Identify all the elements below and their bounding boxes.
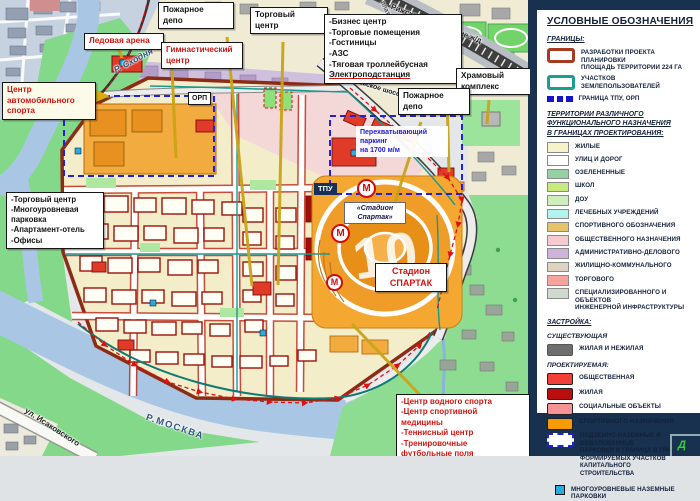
legend-item-label: МНОГОУРОВНЕВЫЕ НАЗЕМНЫЕ ПАРКОВКИ [571,485,695,501]
legend-item: ЖИЛИЩНО-КОММУНАЛЬНОГО [547,262,695,273]
legend-item-label: АДМИНИСТРАТИВНО-ДЕЛОВОГО [575,248,680,256]
callout-fire-depot-2: Пожарное депо [398,88,470,115]
territory-swatch [547,222,569,233]
legend-item: ГРАНИЦА ТПУ, ОРП [547,95,695,103]
legend-item: ШКОЛ [547,182,695,193]
legend-panel: УСЛОВНЫЕ ОБОЗНАЧЕНИЯ ГРАНИЦЫ: РАЗРАБОТКИ… [528,0,700,456]
territory-swatch [547,142,569,153]
legend-item-label: ШКОЛ [575,182,594,190]
legend-item: ЖИЛЫЕ [547,142,695,153]
territory-swatch [547,195,569,206]
legend-item-label: ОЗЕЛЕНЕННЫЕ [575,169,625,177]
callout-auto-sport-center: Центр автомобильного спорта [2,82,96,120]
territory-swatch [547,288,569,299]
label-stadium-spartak: Стадион СПАРТАК [375,263,447,292]
border-swatch-landusers [547,75,575,90]
border-swatch-tpu-orp [547,95,573,103]
legend-item-label: ЛЕЧЕБНЫХ УЧРЕЖДЕНИЙ [575,209,659,217]
legend-item-label: СПОРТИВНОГО ОБОЗНАЧЕНИЯ [575,222,675,230]
blue-square [547,96,554,103]
planned-swatch [547,418,573,430]
callout-south-sports: -Центр водного спорта -Центр спортивной … [396,394,530,456]
callout-fire-depot-1: Пожарное депо [158,2,234,29]
metro-icon: М [357,179,376,198]
legend-item: РАЗРАБОТКИ ПРОЕКТА ПЛАНИРОВКИ ПЛОЩАДЬ ТЕ… [547,48,695,72]
planned-swatch [547,388,573,400]
legend-item: СПОРТИВНОГО ОБОЗНАЧЕНИЯ [547,222,695,233]
legend-item: ЛЕЧЕБНЫХ УЧРЕЖДЕНИЙ [547,209,695,220]
legend-planned-header: ПРОЕКТИРУЕМАЯ: [547,362,695,369]
map-canvas: 10 [0,0,530,456]
callout-ice-arena: Ледовая арена [84,33,164,50]
legend-item: СПОРТИВНОГО НАЗНАЧЕНИЯ [547,418,695,430]
legend-item-label: УЛИЦ И ДОРОГ [575,155,623,163]
blue-square [566,96,573,103]
business-block-substation: Электроподстанция [329,70,410,79]
legend-item-label: ЖИЛАЯ [579,388,603,396]
legend-item-label: РАЗРАБОТКИ ПРОЕКТА ПЛАНИРОВКИ ПЛОЩАДЬ ТЕ… [581,48,695,72]
label-orp: ОРП [188,92,211,105]
legend-item-label: СПЕЦИАЛИЗИРОВАННОГО И ОБЪЕКТОВ ИНЖЕНЕРНО… [575,288,695,312]
callout-intercept-parking: Перехватывающий паркинг на 1700 м/м [356,126,448,157]
label-spartak-station: «Стадион Спартак» [344,202,406,224]
territory-swatch [547,235,569,246]
legend-item: ОБЩЕСТВЕННАЯ [547,373,695,385]
legend-item-label: ОБЩЕСТВЕННАЯ [579,373,634,381]
callout-left-services: -Торговый центр -Многоуровневая парковка… [6,192,104,249]
planned-swatch [547,403,573,415]
legend-item-label: СПОРТИВНОГО НАЗНАЧЕНИЯ [579,418,674,426]
legend-item: ОЗЕЛЕНЕННЫЕ [547,169,695,180]
legend-item-label: ТОРГОВОГО [575,275,614,283]
legend-item: ЖИЛАЯ И НЕЖИЛАЯ [547,344,695,356]
legend-item: СОЦИАЛЬНЫЕ ОБЪЕКТЫ [547,403,695,415]
territory-swatch [547,248,569,259]
business-block-lines: -Бизнес центр -Торговые помещения -Гости… [329,17,428,69]
legend-item-label: ЖИЛЫЕ [575,142,600,150]
legend-item-label: СОЦИАЛЬНЫЕ ОБЪЕКТЫ [579,403,661,411]
territory-swatch [547,262,569,273]
legend-item-label: УЧАСТКОВ ЗЕМЛЕПОЛЬЗОВАТЕЛЕЙ [581,75,695,91]
legend-item: ЖИЛАЯ [547,388,695,400]
multilevel-parking-swatch [555,485,565,495]
planned-swatch [547,373,573,385]
metro-icon: М [331,224,350,243]
legend-item: ДОУ [547,195,695,206]
callout-gym-center: Гимнастический центр [161,42,243,69]
legend-item: УЧАСТКОВ ЗЕМЛЕПОЛЬЗОВАТЕЛЕЙ [547,75,695,91]
legend-section-borders: ГРАНИЦЫ: [547,35,695,44]
metro-icon: М [326,274,343,291]
legend-item-label: ГРАНИЦА ТПУ, ОРП [579,95,640,103]
legend-item: СПЕЦИАЛИЗИРОВАННОГО И ОБЪЕКТОВ ИНЖЕНЕРНО… [547,288,695,312]
blue-square [557,96,564,103]
territory-swatch [547,275,569,286]
legend-item-label: ДОУ [575,195,588,203]
callout-business-block: -Бизнес центр -Торговые помещения -Гости… [324,14,462,84]
legend-box: УСЛОВНЫЕ ОБОЗНАЧЕНИЯ ГРАНИЦЫ: РАЗРАБОТКИ… [537,10,700,413]
territory-swatch [547,209,569,220]
legend-section-territories: ТЕРРИТОРИИ РАЗЛИЧНОГО ФУНКЦИОНАЛЬНОГО НА… [547,110,695,138]
legend-item: АДМИНИСТРАТИВНО-ДЕЛОВОГО [547,248,695,259]
border-swatch-project [547,48,575,63]
corner-button[interactable]: Д [670,434,700,456]
legend-item-label: ЖИЛАЯ И НЕЖИЛАЯ [579,344,644,352]
legend-item-label: ОБЩЕСТВЕННОГО НАЗНАЧЕНИЯ [575,235,681,243]
legend-title: УСЛОВНЫЕ ОБОЗНАЧЕНИЯ [547,16,695,27]
planning-map-page: 10 [0,0,700,456]
legend-section-zastroika: ЗАСТРОЙКА: [547,318,695,327]
legend-item: УЛИЦ И ДОРОГ [547,155,695,166]
callout-shopping-center: Торговый центр [250,7,328,34]
existing-swatch [547,344,573,356]
territory-swatch [547,169,569,180]
label-tpu: ТПУ [314,183,337,195]
underground-parking-swatch [547,433,574,447]
territory-swatch [547,155,569,166]
legend-existing-header: СУЩЕСТВУЮЩАЯ [547,333,695,340]
legend-item-label: ЖИЛИЩНО-КОММУНАЛЬНОГО [575,262,672,270]
legend-item: МНОГОУРОВНЕВЫЕ НАЗЕМНЫЕ ПАРКОВКИ [547,485,695,501]
territory-swatch [547,182,569,193]
legend-item: ТОРГОВОГО [547,275,695,286]
legend-item: ОБЩЕСТВЕННОГО НАЗНАЧЕНИЯ [547,235,695,246]
